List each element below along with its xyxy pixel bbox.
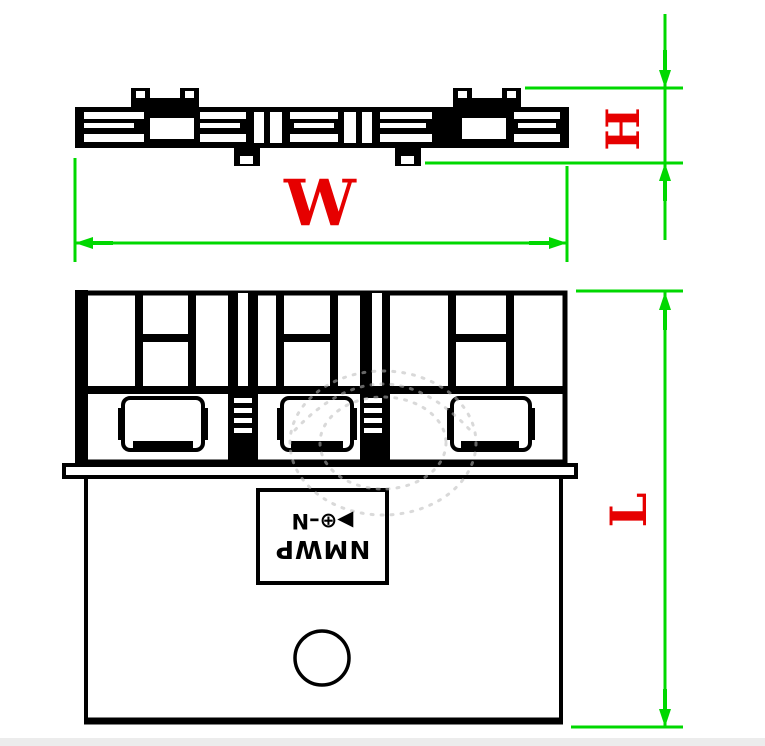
technical-drawing-canvas: W H L NMWP ▶⊕–N (0, 0, 765, 746)
dim-arrow-l-bottom (659, 689, 671, 727)
latch-clip-left (131, 88, 199, 108)
bay-wall-pair-1 (228, 293, 258, 463)
dim-arrow-w-left (75, 237, 113, 249)
brand-name-text: NMWP (275, 538, 371, 563)
mount-foot-left (234, 148, 260, 166)
dimension-label-height: H (596, 102, 650, 156)
brand-plate: NMWP ▶⊕–N (258, 490, 387, 583)
latch-clip-right (453, 88, 521, 108)
scan-edge-strip (0, 738, 765, 746)
dim-arrow-w-right (529, 237, 567, 249)
terminal-contact-1 (118, 398, 208, 450)
terminal-contact-3 (447, 398, 535, 450)
dimension-label-width: W (284, 172, 356, 236)
dim-arrow-h-bottom (659, 163, 671, 201)
mount-foot-right (395, 148, 421, 166)
dim-arrow-h-top (659, 50, 671, 88)
bay-wall-pair-2 (360, 293, 390, 463)
connector-technical-drawing (0, 0, 765, 746)
dimension-label-length: L (601, 482, 657, 538)
top-profile-view (75, 88, 569, 166)
brand-logo-mark: ▶⊕–N (292, 511, 354, 532)
dim-arrow-l-top (659, 292, 671, 330)
mounting-hole (295, 631, 349, 685)
